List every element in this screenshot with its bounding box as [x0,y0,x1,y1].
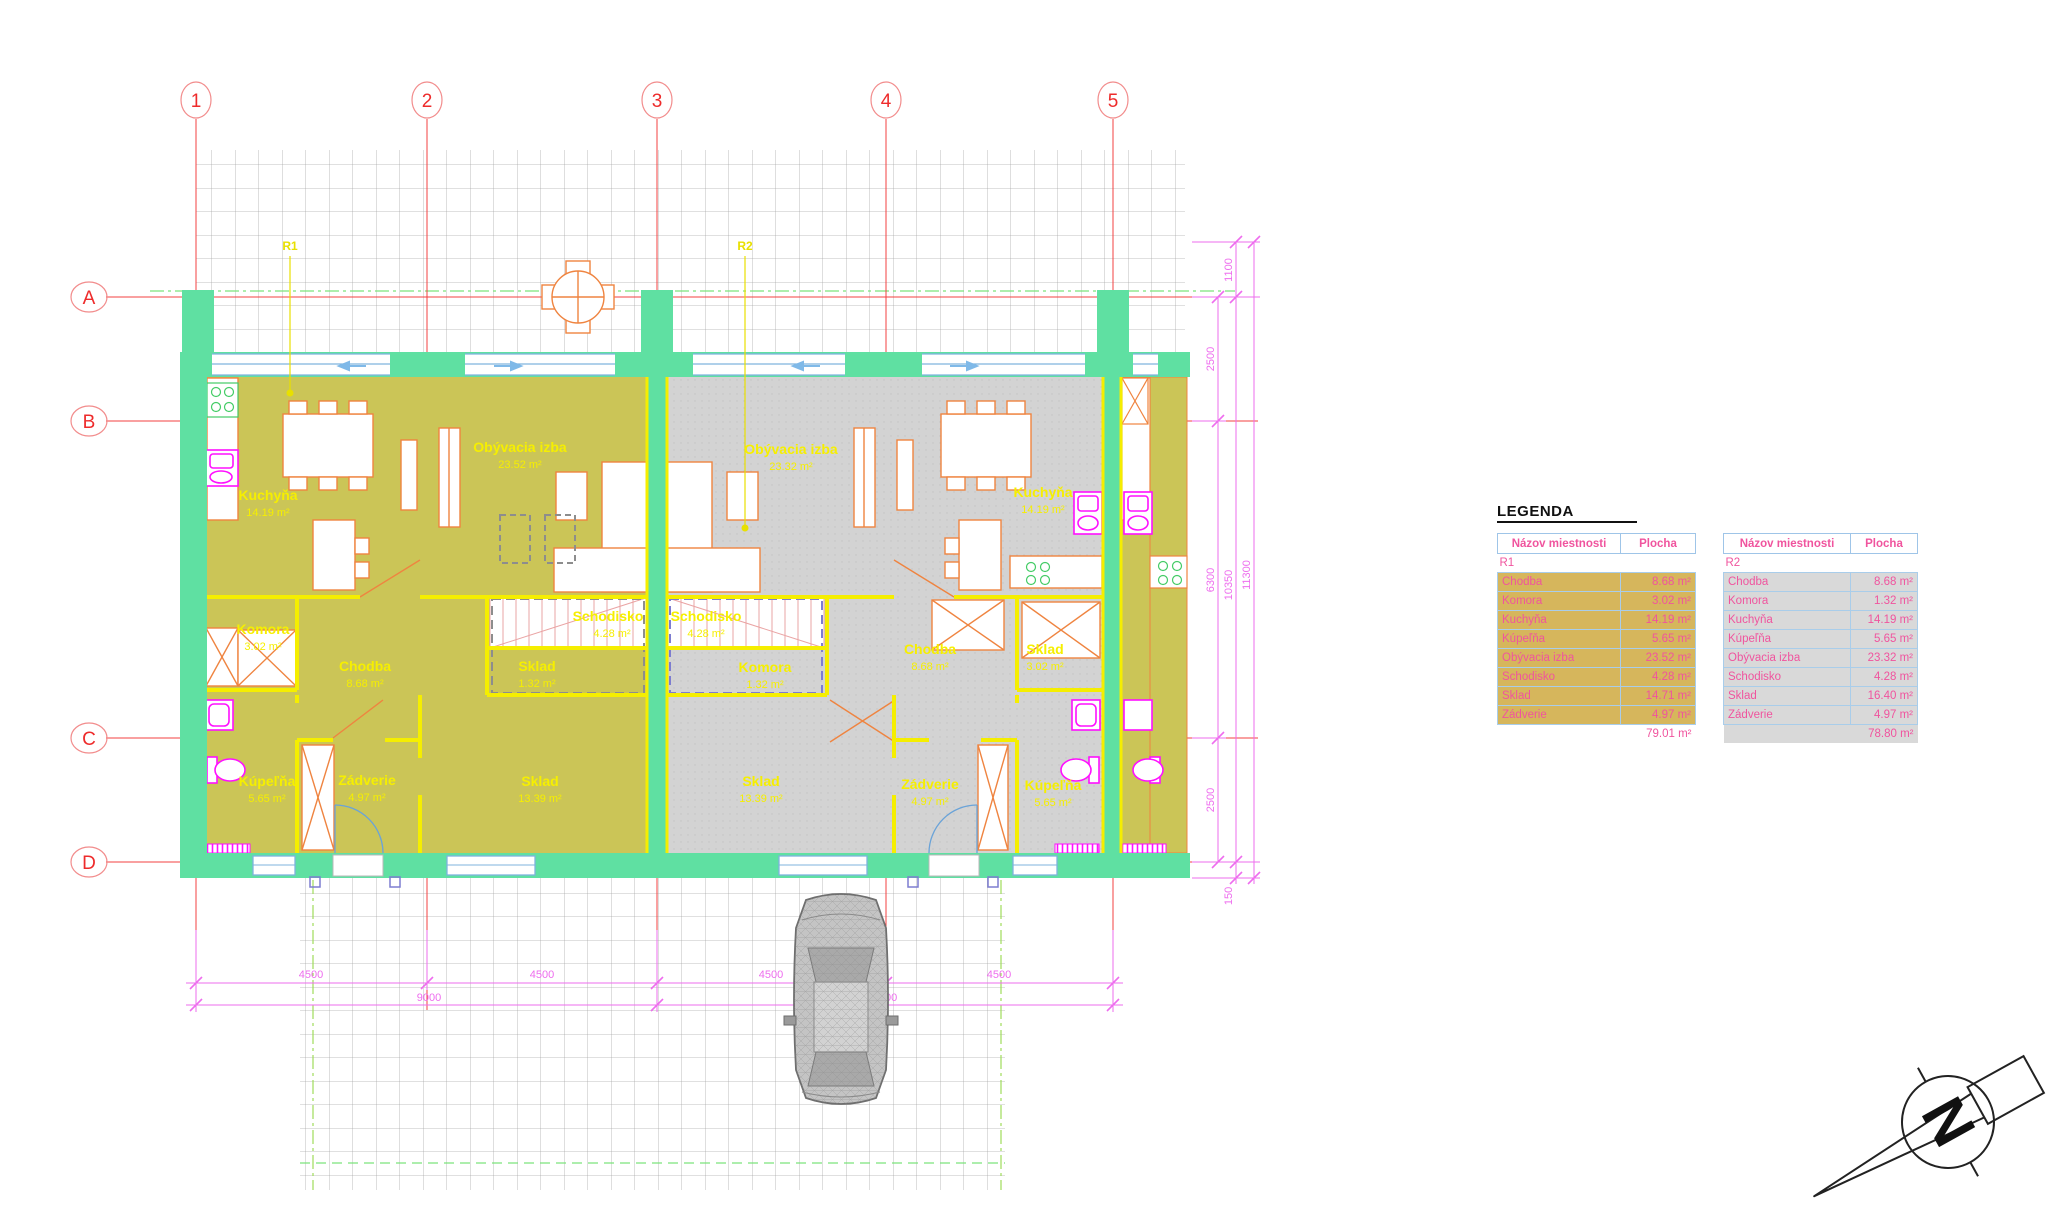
legend-row-name: Obývacia izba [1498,649,1621,668]
room-area: 23.32 m² [769,461,813,473]
legend-row-name: Kuchyňa [1724,611,1851,630]
legend-title: LEGENDA [1497,503,1637,523]
room-area: 13.39 m² [739,793,783,805]
dim-right-10350: 10350 [1223,570,1235,601]
room-area: 14.19 m² [1021,504,1065,516]
radiator-r2 [1055,844,1099,853]
legend-table-r1: Názov miestnosti Plocha R1 Chodba8.68 m²… [1497,533,1696,743]
axis-column-5: 5 [1108,91,1119,112]
room-label: Sklad [1026,641,1063,657]
legend-row-area: 14.19 m² [1621,611,1696,630]
room-area: 4.28 m² [687,628,725,640]
dim-4500-2: 4500 [530,969,554,981]
legend-table-r2: Názov miestnosti Plocha R2 Chodba8.68 m²… [1723,533,1918,743]
axis-row-d: D [82,853,96,874]
legend-row-name: Komora [1498,592,1621,611]
room-area: 23.52 m² [498,459,542,471]
legend-row-name: Sklad [1498,687,1621,706]
legend-row-name: Obývacia izba [1724,649,1851,668]
wardrobe-zadverie-r1 [302,745,334,850]
legend-panel: LEGENDA [1497,503,1637,523]
legend-row-name: Kúpeľňa [1498,630,1621,649]
legend-row-name: Schodisko [1724,668,1851,687]
legend-row-area: 1.32 m² [1851,592,1918,611]
room-area: 1.32 m² [746,679,784,691]
legend-row-name: Sklad [1724,687,1851,706]
dim-4500-1: 4500 [299,969,323,981]
axis-column-2: 2 [422,91,433,112]
legend-row-area: 4.97 m² [1851,706,1918,725]
radiator-r1 [206,844,250,853]
dim-right-1100: 1100 [1223,258,1235,282]
legend-row-area: 4.28 m² [1621,668,1696,687]
legend-row-area: 14.19 m² [1851,611,1918,630]
room-label: Kúpeľňa [1025,777,1082,793]
room-area: 8.68 m² [911,661,949,673]
axis-column-3: 3 [652,91,663,112]
stove-r1 [207,383,238,417]
room-label: Obývacia izba [744,441,838,457]
legend-row-area: 3.02 m² [1621,592,1696,611]
axis-row-a: A [83,288,96,309]
room-label: Sklad [742,773,779,789]
room-area: 14.19 m² [246,507,290,519]
room-area: 8.68 m² [346,678,384,690]
legend-row-area: 8.68 m² [1851,573,1918,592]
legend-row-area: 14.71 m² [1621,687,1696,706]
room-label: Schodisko [671,608,742,624]
legend-header-area: Plocha [1621,534,1696,554]
dim-4500-3: 4500 [759,969,783,981]
room-label: Kuchyňa [1013,484,1072,500]
legend-row-area: 23.52 m² [1621,649,1696,668]
dim-right-2500-bottom: 2500 [1205,788,1217,812]
room-label: Komora [237,621,290,637]
terrace-grid-top [150,150,1235,352]
legend-row-area: 5.65 m² [1621,630,1696,649]
legend-total-r2: 78.80 m² [1851,725,1918,744]
car-top-view [784,894,898,1104]
room-label: Kuchyňa [238,487,297,503]
room-label: Komora [739,659,792,675]
axis-column-4: 4 [881,91,892,112]
legend-header-name: Názov miestnosti [1498,534,1621,554]
room-area: 4.97 m² [348,792,386,804]
legend-row-area: 4.97 m² [1621,706,1696,725]
room-label: Chodba [339,658,391,674]
legend-row-name: Zádverie [1498,706,1621,725]
room-label: Sklad [521,773,558,789]
legend-total-r1: 79.01 m² [1621,725,1696,744]
wardrobe-zadverie-r2 [978,745,1008,850]
room-area: 5.65 m² [1034,797,1072,809]
dim-4500-4: 4500 [987,969,1011,981]
legend-row-area: 4.28 m² [1851,668,1918,687]
axis-row-b: B [83,412,96,433]
legend-row-name: Komora [1724,592,1851,611]
kitchen-sink-r1 [205,450,238,486]
room-label: Schodisko [573,608,644,624]
dim-right-2500-top: 2500 [1205,347,1217,371]
legend-header-name: Názov miestnosti [1724,534,1851,554]
dim-9000-1: 9000 [417,992,441,1004]
room-area: 4.97 m² [911,796,949,808]
north-compass: N [1784,1020,2048,1221]
room-area: 5.65 m² [248,793,286,805]
legend-header-area: Plocha [1851,534,1918,554]
room-label: Zádverie [338,772,396,788]
room-area: 3.02 m² [244,641,282,653]
room-label: Chodba [904,641,956,657]
floorplan-canvas: R1 R2 Kuchyňa 14.19 m² Obývacia izba 23.… [0,0,2048,1221]
kitchen-sink-r2 [1074,492,1102,534]
legend-row-name: Chodba [1724,573,1851,592]
legend-row-name: Schodisko [1498,668,1621,687]
dim-right-150: 150 [1223,887,1235,905]
terrace-grid-bottom [300,878,1005,1190]
dim-right-11300: 11300 [1241,560,1253,590]
room-label: Zádverie [901,776,959,792]
legend-group-r1: R1 [1498,554,1696,573]
unit-tag-r1: R1 [282,239,298,253]
legend-row-name: Zádverie [1724,706,1851,725]
legend-row-name: Chodba [1498,573,1621,592]
legend-row-area: 5.65 m² [1851,630,1918,649]
room-area: 13.39 m² [518,793,562,805]
room-area: 4.28 m² [593,628,631,640]
legend-group-r2: R2 [1724,554,1918,573]
room-label: Obývacia izba [473,439,567,455]
room-area: 1.32 m² [518,678,556,690]
room-label: Sklad [518,658,555,674]
dim-right-6300: 6300 [1205,568,1217,592]
legend-row-area: 23.32 m² [1851,649,1918,668]
room-label: Kúpeľňa [239,773,296,789]
axis-column-1: 1 [191,91,202,112]
legend-row-name: Kuchyňa [1498,611,1621,630]
legend-row-area: 16.40 m² [1851,687,1918,706]
unit-tag-r2: R2 [737,239,753,253]
axis-row-c: C [82,729,96,750]
legend-row-name: Kúpeľňa [1724,630,1851,649]
legend-row-area: 8.68 m² [1621,573,1696,592]
room-area: 3.02 m² [1026,661,1064,673]
